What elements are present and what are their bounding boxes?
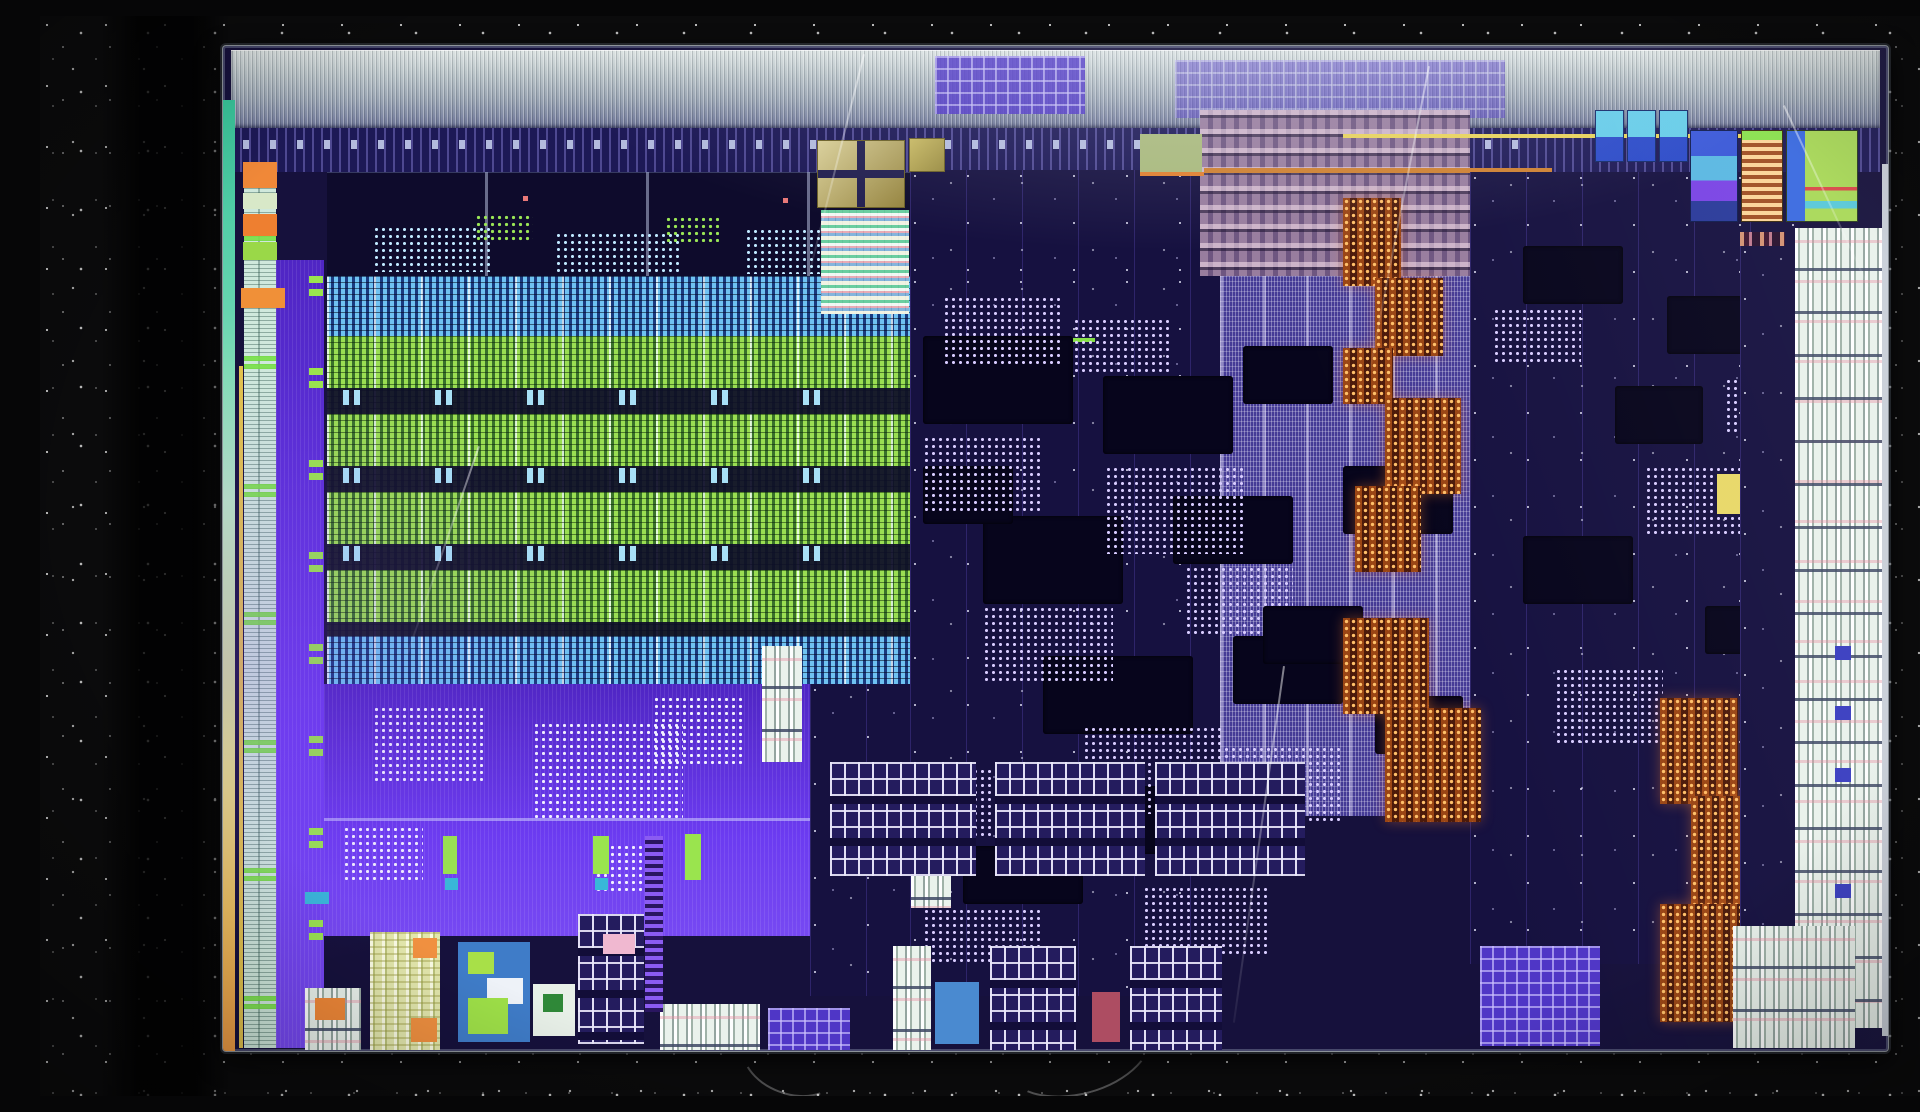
analog-orange-cluster: [1660, 698, 1738, 804]
phy-blue-square: [1835, 706, 1851, 720]
left-io-block-pale: [243, 193, 277, 209]
fuse-pads-gold-grid: [817, 140, 905, 208]
die-edge-right-line: [1882, 164, 1888, 1036]
sage-pad-underline: [1140, 172, 1204, 176]
logic-blob: [1523, 536, 1633, 604]
phy-blue-square: [1835, 646, 1851, 660]
bl-green-square: [543, 994, 563, 1012]
die-edge-left-glow: [223, 100, 235, 1051]
cyan-square: [305, 892, 329, 904]
cache-array-green-bands: [327, 336, 910, 636]
die-photo-stage: Macro photograph of a silicon processor …: [40, 16, 1920, 1096]
bottom-lavgrid-block: [1480, 946, 1600, 1046]
sage-pad: [1140, 134, 1202, 172]
ip-block-blue: [1690, 130, 1738, 222]
io-phy-inner-dark: [1740, 246, 1795, 962]
bl-orange-block: [315, 998, 345, 1020]
io-phy-column-mint: [1795, 228, 1887, 1028]
silicon-die: [223, 46, 1888, 1051]
logic-dot-patch: [983, 606, 1113, 684]
phy-blue-square: [1835, 884, 1851, 898]
top-bond-grid-center: [935, 56, 1085, 114]
bl-orange-block: [411, 1018, 437, 1042]
left-lime-dash-column: [309, 276, 323, 1036]
logic-dot-patch: [1105, 466, 1243, 554]
bottom-pale-block: [660, 1004, 760, 1050]
bl-orange-block: [413, 938, 437, 958]
cache-array-teal-row: [327, 636, 910, 684]
sram-dot-patch-green: [475, 214, 533, 242]
phy-ladder-group: [1130, 946, 1222, 1050]
analog-orange-cluster: [1385, 398, 1461, 494]
cache-bluepair-row: [343, 390, 894, 405]
fuse-pad-gold: [909, 138, 945, 172]
logic-blob: [1103, 376, 1233, 454]
register-column-mint: [762, 646, 802, 762]
bottom-blue-block: [935, 982, 979, 1044]
left-io-block-orange: [243, 162, 277, 188]
ip-block-orange: [1741, 130, 1783, 222]
ip-block-cyan: [1627, 110, 1656, 162]
bl-pink-tab: [603, 934, 635, 954]
logic-dot-patch: [943, 296, 1063, 364]
left-io-block-orange: [241, 288, 285, 308]
logic-dot-patch: [1073, 318, 1173, 376]
analog-orange-cluster: [1343, 618, 1429, 714]
logic-blob: [1523, 246, 1623, 304]
ip-block-green-blue: [1786, 130, 1858, 222]
lime-stem: [593, 836, 609, 874]
bl-lime-square: [468, 952, 494, 974]
defect-dot-red: [523, 196, 528, 201]
logic-dot-patch: [1555, 668, 1663, 746]
phy-ladder-group: [995, 762, 1145, 876]
phy-ladder-group: [830, 762, 976, 876]
analog-orange-cluster: [1355, 486, 1421, 572]
defect-dot-red: [783, 198, 788, 203]
analog-orange-cluster: [1343, 348, 1393, 404]
cyan-square: [595, 878, 608, 890]
violet-dot-patch: [653, 696, 743, 764]
left-yellow-seam: [239, 366, 243, 1048]
pll-mini-logic: [821, 210, 909, 314]
background-shadow-band: [100, 16, 230, 1096]
left-io-block-orange: [243, 214, 277, 236]
sram-dot-patch-cyan: [555, 232, 683, 276]
bottom-lavgrid-block: [768, 1008, 850, 1050]
bottom-white-column: [893, 946, 931, 1050]
bottom-pink-bits: [1092, 992, 1120, 1042]
bl-lime-square: [468, 998, 508, 1034]
violet-hline: [324, 818, 810, 821]
phy-blue-square: [1835, 768, 1851, 782]
ip-block-cyan: [1595, 110, 1624, 162]
violet-dot-patch: [343, 826, 423, 884]
logic-blob: [983, 516, 1123, 604]
logic-blob: [1615, 386, 1703, 444]
cyan-square: [445, 878, 458, 890]
cache-bluepair-row: [343, 468, 894, 483]
logic-blob: [1243, 346, 1333, 404]
left-io-block-lime: [243, 242, 277, 260]
analog-orange-cluster: [1385, 708, 1481, 822]
center-top-navy: [910, 170, 1200, 276]
bl-purple-stripe-column: [645, 836, 663, 1012]
logic-dot-patch: [1493, 308, 1581, 366]
lime-stem: [443, 836, 457, 874]
bottom-pale-block: [1733, 926, 1855, 1048]
sram-dot-patch-green: [665, 216, 719, 242]
analog-orange-cluster: [1343, 198, 1401, 286]
lime-stem: [685, 834, 701, 880]
logic-dot-patch: [923, 436, 1043, 514]
phy-ladder-group: [990, 946, 1076, 1050]
phy-ladder-group: [1155, 762, 1305, 876]
violet-dot-patch: [373, 706, 483, 784]
ip-block-cyan: [1659, 110, 1688, 162]
cache-bluepair-row: [343, 546, 894, 561]
